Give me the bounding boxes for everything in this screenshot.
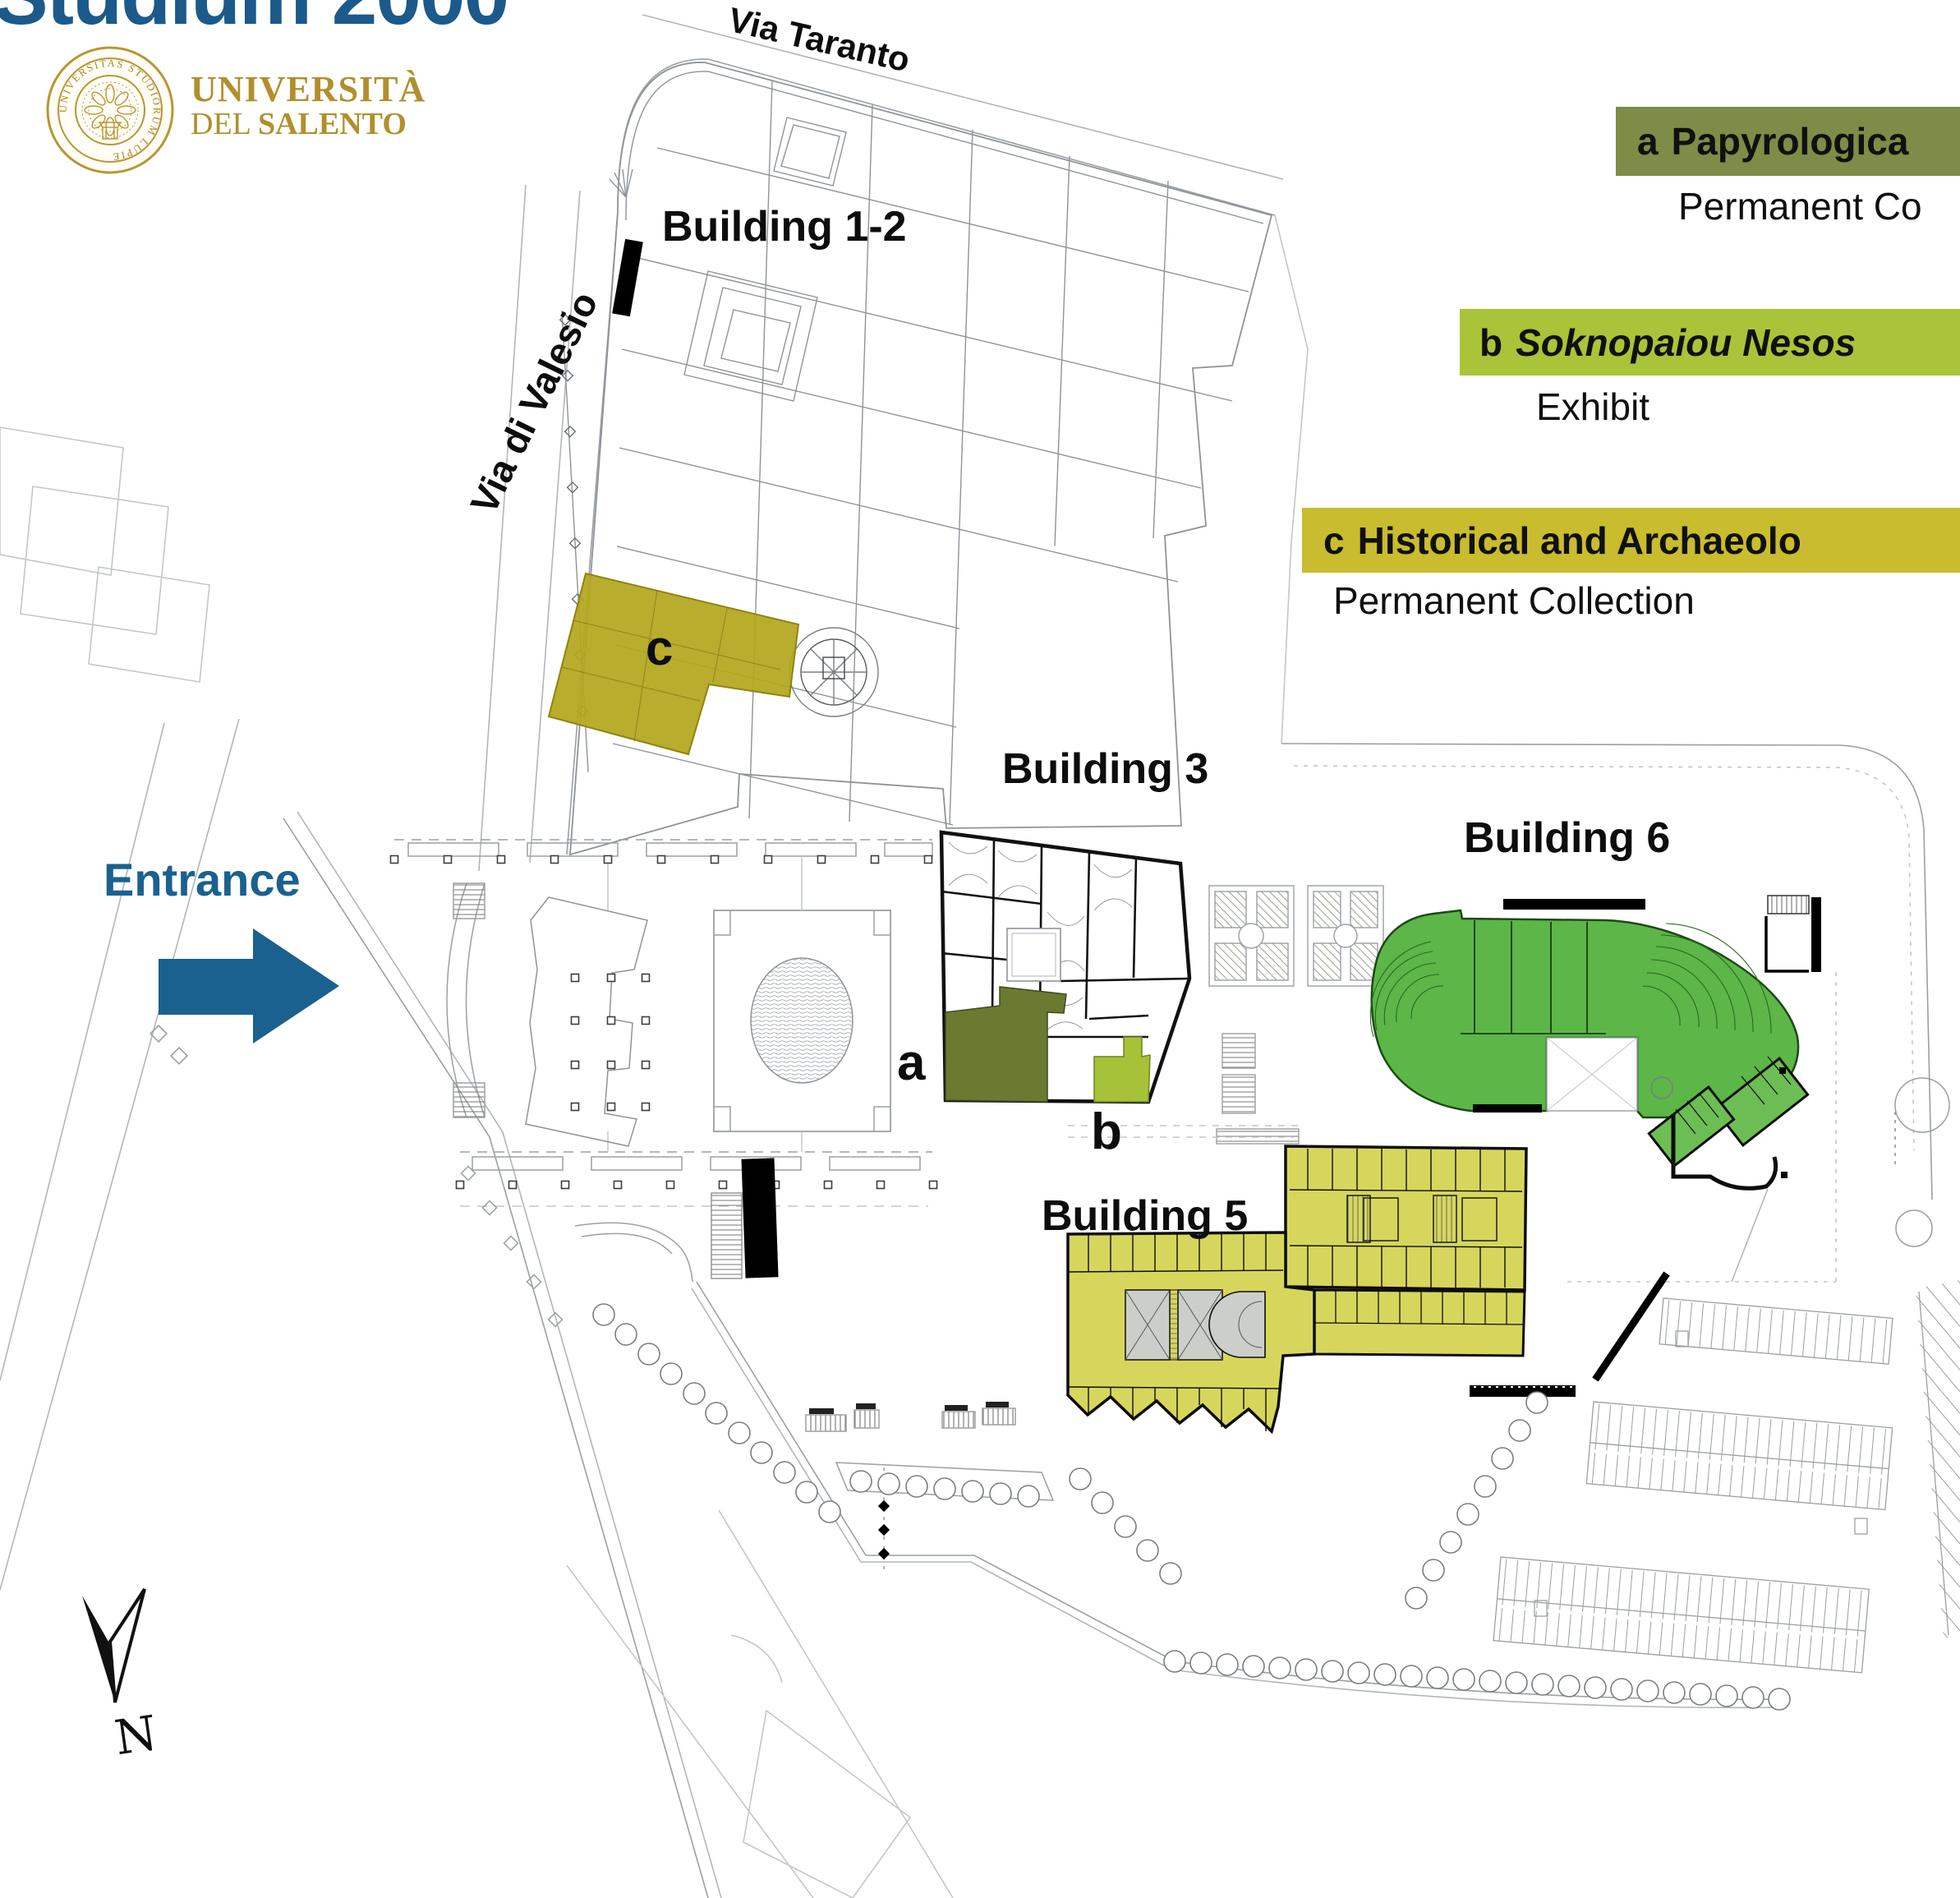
wordmark-line1: UNIVERSITÀ bbox=[191, 71, 426, 108]
legend-item-c: c Historical and Archaeolo bbox=[1302, 508, 1960, 573]
legend-b-key: b bbox=[1479, 320, 1502, 365]
building-3-plan bbox=[941, 832, 1189, 1102]
legend-c-sub: Permanent Collection bbox=[1333, 578, 1695, 623]
parking-lots bbox=[1493, 1280, 1960, 1673]
building-5-label: Building 5 bbox=[1042, 1191, 1248, 1241]
marker-b-label: b bbox=[1091, 1103, 1122, 1161]
site-plan bbox=[0, 0, 1960, 1898]
legend-b-label: Soknopaiou Nesos bbox=[1516, 320, 1856, 365]
legend-a-key: a bbox=[1637, 119, 1659, 164]
building-1-2-label: Building 1-2 bbox=[662, 202, 907, 251]
north-arrow-icon bbox=[82, 1589, 145, 1702]
north-label: N bbox=[112, 1705, 161, 1766]
building-3-label: Building 3 bbox=[1002, 744, 1208, 794]
legend-a-sub: Permanent Co bbox=[1678, 184, 1922, 228]
building-6-label: Building 6 bbox=[1464, 813, 1670, 863]
page-title: Studium 2000 bbox=[0, 0, 508, 44]
wordmark-line2: DEL SALENTO bbox=[191, 108, 426, 141]
legend-a-label: Papyrologica bbox=[1672, 119, 1909, 164]
entrance-arrow-icon bbox=[159, 928, 339, 1043]
campus-map-page: Studium 2000 UNIVERSITAS STUDIORUM LUPIE… bbox=[0, 0, 1960, 1898]
building-5-plan bbox=[1068, 1146, 1526, 1431]
legend-item-a: a Papyrologica bbox=[1616, 107, 1960, 176]
legend-c-key: c bbox=[1323, 518, 1345, 563]
marker-c-label: c bbox=[646, 620, 673, 676]
legend-b-sub: Exhibit bbox=[1536, 385, 1649, 429]
legend-item-b: b Soknopaiou Nesos bbox=[1460, 309, 1960, 375]
central-plaza bbox=[394, 840, 932, 1206]
entrance-label: Entrance bbox=[104, 853, 301, 906]
marker-a-label: a bbox=[897, 1034, 925, 1092]
building-6-underline bbox=[1503, 899, 1645, 910]
building-6-ne-stair bbox=[1766, 896, 1821, 972]
legend-c-label: Historical and Archaeolo bbox=[1358, 518, 1801, 563]
university-seal: UNIVERSITAS STUDIORUM LUPIENSIS bbox=[45, 45, 175, 175]
university-wordmark: UNIVERSITÀ DEL SALENTO bbox=[191, 71, 426, 141]
